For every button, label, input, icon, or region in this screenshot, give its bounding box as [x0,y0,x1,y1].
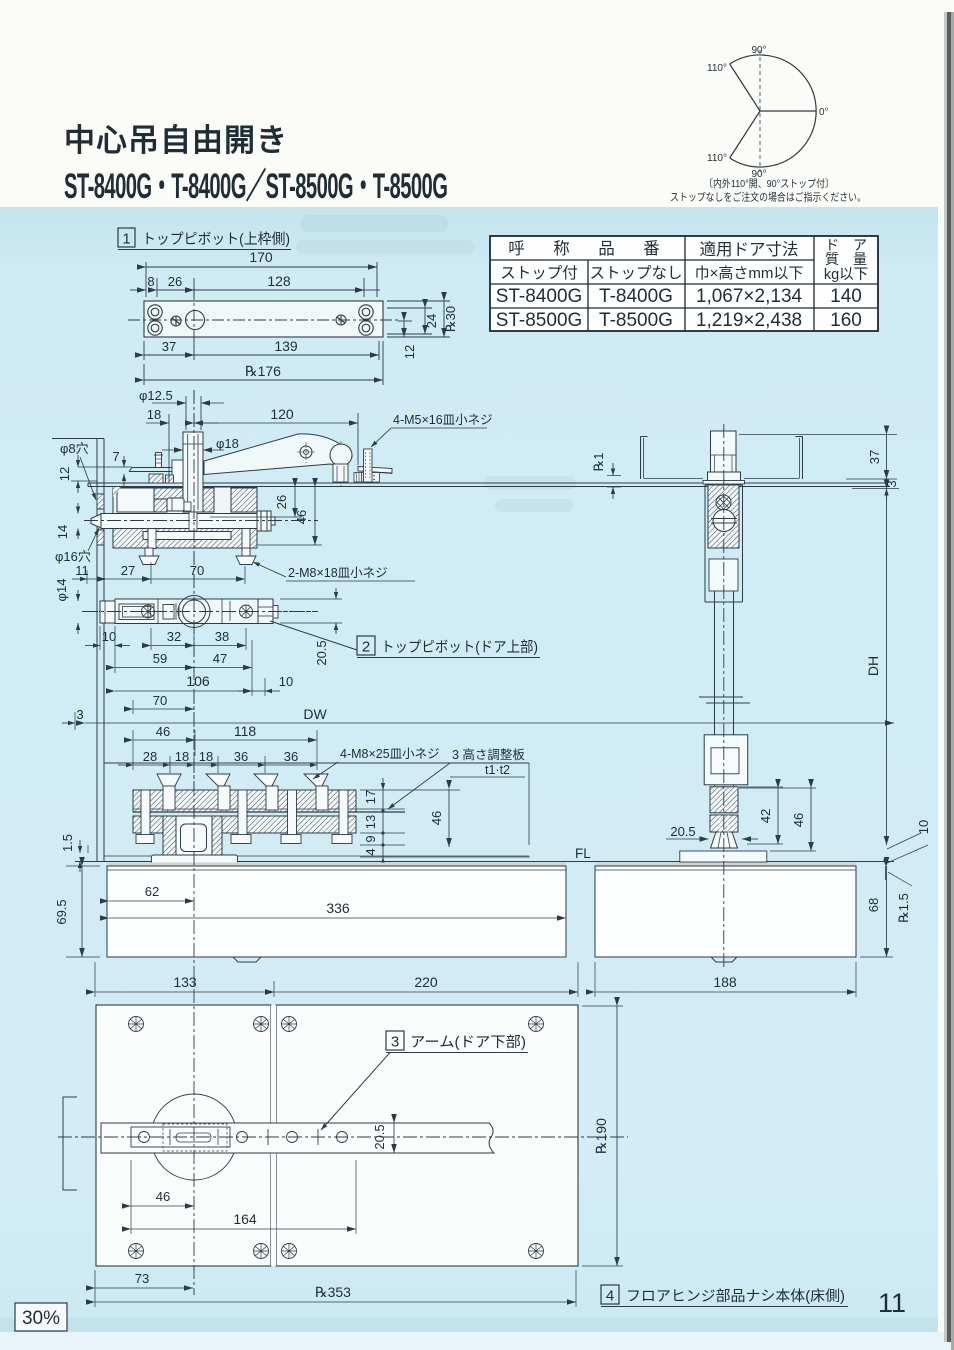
svg-text:トップピボット(ドア上部): トップピボット(ドア上部) [381,639,538,656]
svg-text:140: 140 [830,286,862,307]
svg-text:3: 3 [76,707,83,722]
svg-text:質 量: 質 量 [825,251,867,267]
svg-text:アーム(ドア下部): アーム(ドア下部) [410,1034,526,1051]
svg-text:〔内外110°開、90°ストップ付〕: 〔内外110°開、90°ストップ付〕 [704,177,834,190]
svg-text:46: 46 [429,811,444,825]
svg-text:70: 70 [153,693,167,708]
svg-text:220: 220 [414,974,438,990]
svg-text:17: 17 [363,790,378,804]
svg-text:φ14: φ14 [54,579,69,602]
svg-text:37: 37 [867,450,882,464]
svg-text:110°: 110° [707,153,727,164]
svg-text:φ8穴: φ8穴 [60,441,89,456]
svg-text:10: 10 [916,820,931,834]
svg-text:164: 164 [233,1211,257,1227]
svg-text:中心吊自由開き: 中心吊自由開き [64,123,288,158]
svg-text:128: 128 [267,273,291,289]
svg-text:℞30: ℞30 [443,306,458,332]
svg-text:12: 12 [402,345,417,359]
svg-text:11: 11 [878,1288,906,1318]
svg-text:13: 13 [363,815,378,829]
svg-text:188: 188 [713,974,737,990]
svg-text:18: 18 [147,407,161,422]
svg-text:φ18: φ18 [216,436,239,451]
svg-text:336: 336 [326,900,350,916]
svg-text:フロアヒンジ部品ナシ本体(床側): フロアヒンジ部品ナシ本体(床側) [626,1288,845,1305]
svg-text:℞1.5: ℞1.5 [896,893,911,923]
svg-text:9: 9 [363,835,378,842]
svg-text:38: 38 [215,629,229,644]
svg-text:φ12.5: φ12.5 [139,388,173,403]
svg-text:1,219×2,438: 1,219×2,438 [696,310,802,331]
svg-text:160: 160 [830,310,862,331]
svg-text:ST-8400G: ST-8400G [496,286,583,307]
svg-text:70: 70 [190,563,204,578]
svg-text:DH: DH [865,656,881,676]
svg-text:T-8400G: T-8400G [599,286,673,307]
svg-text:120: 120 [270,406,294,422]
svg-text:30%: 30% [22,1308,60,1329]
svg-text:73: 73 [135,1271,149,1286]
svg-text:46: 46 [294,510,309,524]
svg-text:8: 8 [147,274,154,289]
svg-text:170: 170 [249,249,273,265]
svg-text:24: 24 [424,314,439,328]
svg-text:46: 46 [156,1189,170,1204]
svg-text:3: 3 [884,480,899,487]
svg-text:1,067×2,134: 1,067×2,134 [696,286,803,307]
svg-text:1: 1 [122,231,130,248]
svg-text:1.5: 1.5 [60,834,75,852]
svg-text:46: 46 [791,813,806,827]
svg-text:59: 59 [153,651,167,666]
svg-text:DW: DW [303,706,327,722]
svg-text:36: 36 [284,749,298,764]
svg-text:トップピボット(上枠側): トップピボット(上枠側) [142,231,290,248]
svg-text:26: 26 [168,274,182,289]
svg-text:90°: 90° [751,45,766,56]
svg-text:42: 42 [758,809,773,823]
svg-text:46: 46 [156,724,170,739]
svg-text:0°: 0° [819,107,829,118]
svg-text:32: 32 [167,629,181,644]
svg-text:T-8500G: T-8500G [599,310,673,331]
svg-text:4-M8×25皿小ネジ: 4-M8×25皿小ネジ [340,747,440,761]
svg-text:10: 10 [102,629,116,644]
svg-text:適用ドア寸法: 適用ドア寸法 [700,240,799,259]
svg-text:11: 11 [75,563,89,578]
svg-text:68: 68 [866,898,881,912]
svg-text:℞190: ℞190 [593,1118,609,1154]
svg-text:28: 28 [143,749,157,764]
svg-text:ストップ付: ストップ付 [500,264,578,282]
svg-text:18: 18 [175,749,189,764]
svg-text:呼 称 品 番: 呼 称 品 番 [508,239,666,258]
svg-text:2: 2 [362,639,370,656]
svg-text:133: 133 [173,974,197,990]
svg-text:10: 10 [279,674,293,689]
svg-text:20.5: 20.5 [670,824,695,839]
svg-text:37: 37 [162,339,176,354]
svg-text:69.5: 69.5 [54,899,69,924]
svg-text:ストップなし: ストップなし [589,264,682,282]
svg-text:118: 118 [234,723,257,739]
svg-text:4: 4 [363,848,378,855]
svg-text:4-M5×16皿小ネジ: 4-M5×16皿小ネジ [393,413,493,427]
svg-text:3 高さ調整板: 3 高さ調整板 [452,747,525,762]
svg-text:139: 139 [274,338,298,354]
svg-text:110°: 110° [707,63,727,74]
svg-text:62: 62 [145,884,159,899]
svg-text:18: 18 [199,749,213,764]
svg-text:℞353: ℞353 [315,1284,351,1300]
svg-text:ST-8500G: ST-8500G [496,310,583,331]
svg-text:27: 27 [121,563,135,578]
svg-text:ストップなしをご注文の場合はご指示ください。: ストップなしをご注文の場合はご指示ください。 [670,191,866,204]
svg-text:t1·t2: t1·t2 [485,763,510,777]
svg-text:3: 3 [391,1034,399,1051]
svg-text:20.5: 20.5 [314,640,329,665]
svg-text:26: 26 [274,495,289,509]
svg-text:36: 36 [234,749,248,764]
svg-text:巾×高さmm以下: 巾×高さmm以下 [695,265,804,282]
svg-text:FL: FL [575,846,591,861]
svg-text:4: 4 [606,1288,614,1305]
svg-text:12: 12 [57,467,72,481]
svg-text:℞176: ℞176 [245,363,281,379]
svg-text:φ16穴: φ16穴 [55,549,91,564]
svg-text:kg以下: kg以下 [824,267,868,283]
svg-text:℞1: ℞1 [591,453,606,472]
svg-text:14: 14 [55,525,70,539]
svg-text:7: 7 [112,449,119,464]
svg-text:106: 106 [186,673,210,689]
svg-text:47: 47 [213,651,227,666]
svg-text:2-M8×18皿小ネジ: 2-M8×18皿小ネジ [288,566,388,580]
svg-text:ST-8400G・T-8400G／ST-8500G・T-85: ST-8400G・T-8400G／ST-8500G・T-8500G [64,166,447,206]
